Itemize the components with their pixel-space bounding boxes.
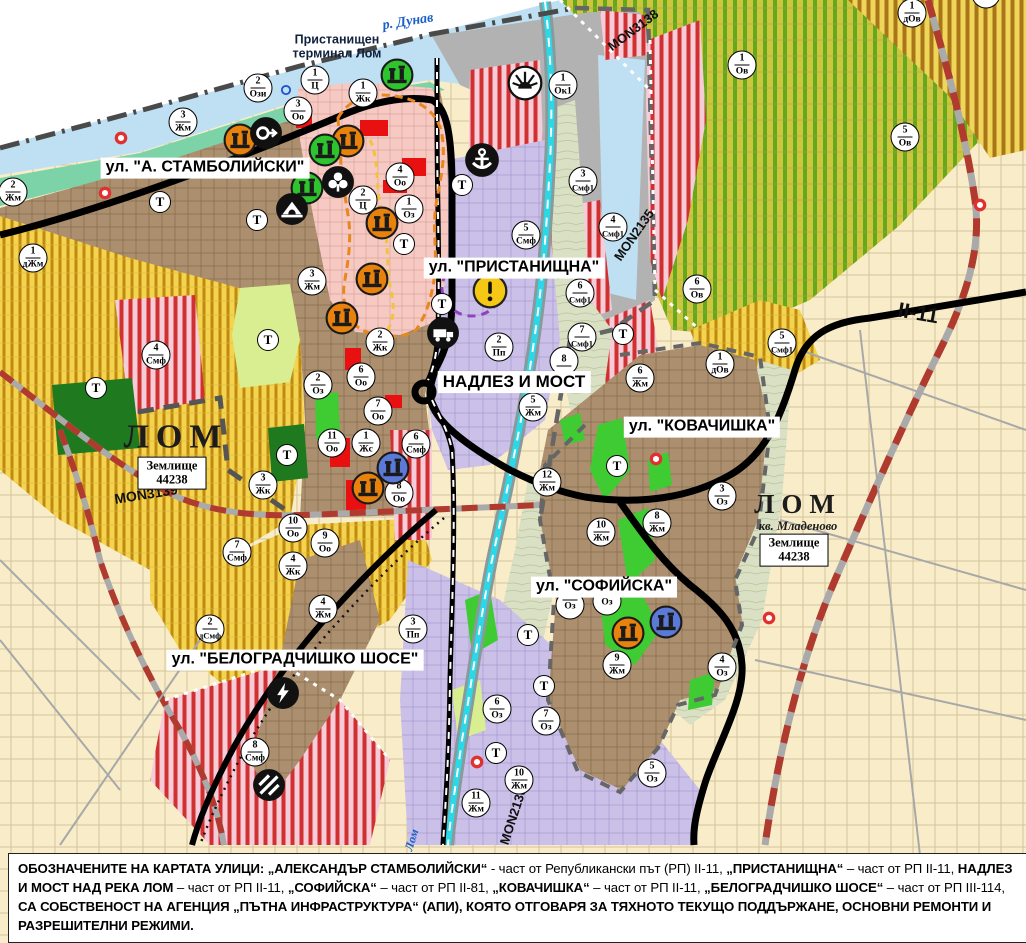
zone-marker: 9Жм [603, 651, 632, 680]
t-marker: Т [612, 323, 634, 345]
footer-text-segment: „АЛЕКСАНДЪР СТАМБОЛИЙСКИ“ [268, 861, 487, 876]
zone-marker: 5Смф1 [768, 329, 797, 358]
sun-icon [507, 65, 543, 101]
t-marker: Т [149, 191, 171, 213]
map-stage: ОБОЗНАЧЕНИТЕ НА КАРТАТА УЛИЦИ: „АЛЕКСАНД… [0, 0, 1026, 943]
footer-text-segment: „БЕЛОГРАДЧИШКО ШОСЕ“ [704, 880, 883, 895]
zone-marker: 4Оо [386, 163, 415, 192]
footer-text-segment: ОБОЗНАЧЕНИТЕ НА КАРТАТА УЛИЦИ: [18, 861, 268, 876]
street-label: ул. "ПРИСТАНИЩНА" [424, 258, 605, 279]
zone-marker: 6Оз [483, 695, 512, 724]
zone-marker: 11Оо [318, 429, 347, 458]
zone-marker: 7Оо [364, 397, 393, 426]
zone-marker: 7Оз [532, 707, 561, 736]
zone-marker: 3Оз [708, 482, 737, 511]
footer-note: ОБОЗНАЧЕНИТЕ НА КАРТАТА УЛИЦИ: „АЛЕКСАНД… [8, 853, 1026, 943]
street-label: НАДЛЕЗ И МОСТ [438, 371, 591, 393]
footer-text-segment: СА СОБСТВЕНОСТ НА АГЕНЦИЯ „ПЪТНА ИНФРАСТ… [18, 899, 991, 933]
map-label: ЛОМ [754, 490, 842, 520]
railway-crossing-icon [252, 768, 286, 802]
zone-marker: 1Ов [728, 51, 757, 80]
land-plot-label: Землище 44238 [760, 534, 829, 567]
landmark-icon [308, 133, 342, 167]
zone-marker: 5Оз [638, 759, 667, 788]
landmark-icon [376, 451, 410, 485]
landmark-icon [365, 206, 399, 240]
zone-marker: 1дОв [706, 350, 735, 379]
point-marker-icon [973, 198, 988, 213]
zone-marker: 1дЖм [19, 244, 48, 273]
land-plot-label: Землище 44238 [138, 457, 207, 490]
zone-marker: 5Ов [891, 123, 920, 152]
map-label: кв. Младеново [759, 520, 838, 534]
zone-marker: 3Жк [249, 471, 278, 500]
zone-marker: 6Жм [626, 364, 655, 393]
zone-marker: 10Оо [279, 514, 308, 543]
zone-marker: 11Жм [462, 789, 491, 818]
zone-marker: 8Смф [241, 738, 270, 767]
t-marker: Т [276, 444, 298, 466]
street-label: ул. "БЕЛОГРАДЧИШКО ШОСЕ" [167, 650, 424, 671]
zone-marker: 3Жм [298, 267, 327, 296]
zone-marker: 6Ов [683, 275, 712, 304]
map-label: Пристанищен терминал Лом [293, 33, 382, 61]
landmark-icon [649, 605, 683, 639]
zone-marker: 8Жм [643, 509, 672, 538]
street-label: ул. "СОФИЙСКА" [531, 577, 677, 598]
zone-marker: 3Оо [284, 97, 313, 126]
t-marker: Т [533, 675, 555, 697]
zone-marker: 5Жм [519, 393, 548, 422]
t-marker: Т [246, 209, 268, 231]
footer-text-segment: „СОФИЙСКА“ [288, 880, 377, 895]
truck-icon [426, 316, 460, 350]
zone-marker: 4Смф1 [599, 213, 628, 242]
point-marker-icon [649, 452, 664, 467]
zone-marker: 10Жм [587, 518, 616, 547]
zone-marker: 7Смф [223, 538, 252, 567]
zone-marker: 4Оз [708, 653, 737, 682]
zone-marker: 3Жм [169, 108, 198, 137]
footer-text-segment: – част от РП II-81, [377, 880, 492, 895]
zone-marker: 2Пп [485, 333, 514, 362]
zone-marker: 5Смф [512, 221, 541, 250]
tunnel-icon [275, 192, 309, 226]
footer-text-segment: - част от Републикански път (РП) II-11, [487, 861, 726, 876]
t-marker: Т [257, 329, 279, 351]
zone-marker: 3Смф1 [569, 167, 598, 196]
lightning-icon [266, 676, 300, 710]
t-marker: Т [606, 455, 628, 477]
zone-marker: 2Жк [366, 328, 395, 357]
footer-text-segment: – част от РП II-11, [173, 880, 288, 895]
footer-text-segment: – част от РП II-11, [843, 861, 958, 876]
footer-text-segment: „ПРИСТАНИЩНА“ [726, 861, 843, 876]
t-marker: Т [431, 293, 453, 315]
zone-marker: 3Пп [399, 615, 428, 644]
landmark-icon [325, 301, 359, 335]
zone-marker: 1Ок1 [549, 71, 578, 100]
map-label: ЛОМ [124, 418, 229, 455]
footer-text-segment: „КОВАЧИШКА“ [492, 880, 589, 895]
point-marker-icon [470, 755, 485, 770]
point-marker-icon [98, 186, 113, 201]
landmark-icon [380, 58, 414, 92]
zone-marker: 1Ц [301, 66, 330, 95]
zone-marker: 4Смф [142, 341, 171, 370]
point-marker-icon [762, 611, 777, 626]
t-marker: Т [85, 377, 107, 399]
landmark-icon [611, 616, 645, 650]
zone-marker: 6Смф1 [566, 279, 595, 308]
zone-marker: 10Жм [505, 766, 534, 795]
zone-marker: 4Жк [279, 552, 308, 581]
zone-marker: 9Оо [311, 529, 340, 558]
footer-text-segment: – част от РП II-11, [590, 880, 705, 895]
clover-icon [321, 165, 355, 199]
street-label: ул. "А. СТАМБОЛИЙСКИ" [101, 158, 310, 179]
ring-marker-icon [280, 84, 292, 96]
zone-marker: 2Ози [244, 74, 273, 103]
landmark-icon [355, 262, 389, 296]
footer-text-segment: – част от РП III-114, [883, 880, 1005, 895]
point-marker-icon [114, 131, 129, 146]
roundabout-icon [249, 116, 283, 150]
zone-marker: 2Оз [304, 371, 333, 400]
zone-marker: 4Жм [309, 595, 338, 624]
zone-marker: 2дСмф [196, 615, 225, 644]
zone-marker: 6Оо [347, 363, 376, 392]
street-label: ул. "КОВАЧИШКА" [624, 417, 780, 438]
anchor-icon [464, 142, 500, 178]
zone-marker: 12Жм [533, 468, 562, 497]
zone-marker: 7Смф1 [568, 323, 597, 352]
t-marker: Т [485, 742, 507, 764]
t-marker: Т [517, 624, 539, 646]
zone-marker: 1Жк [349, 79, 378, 108]
